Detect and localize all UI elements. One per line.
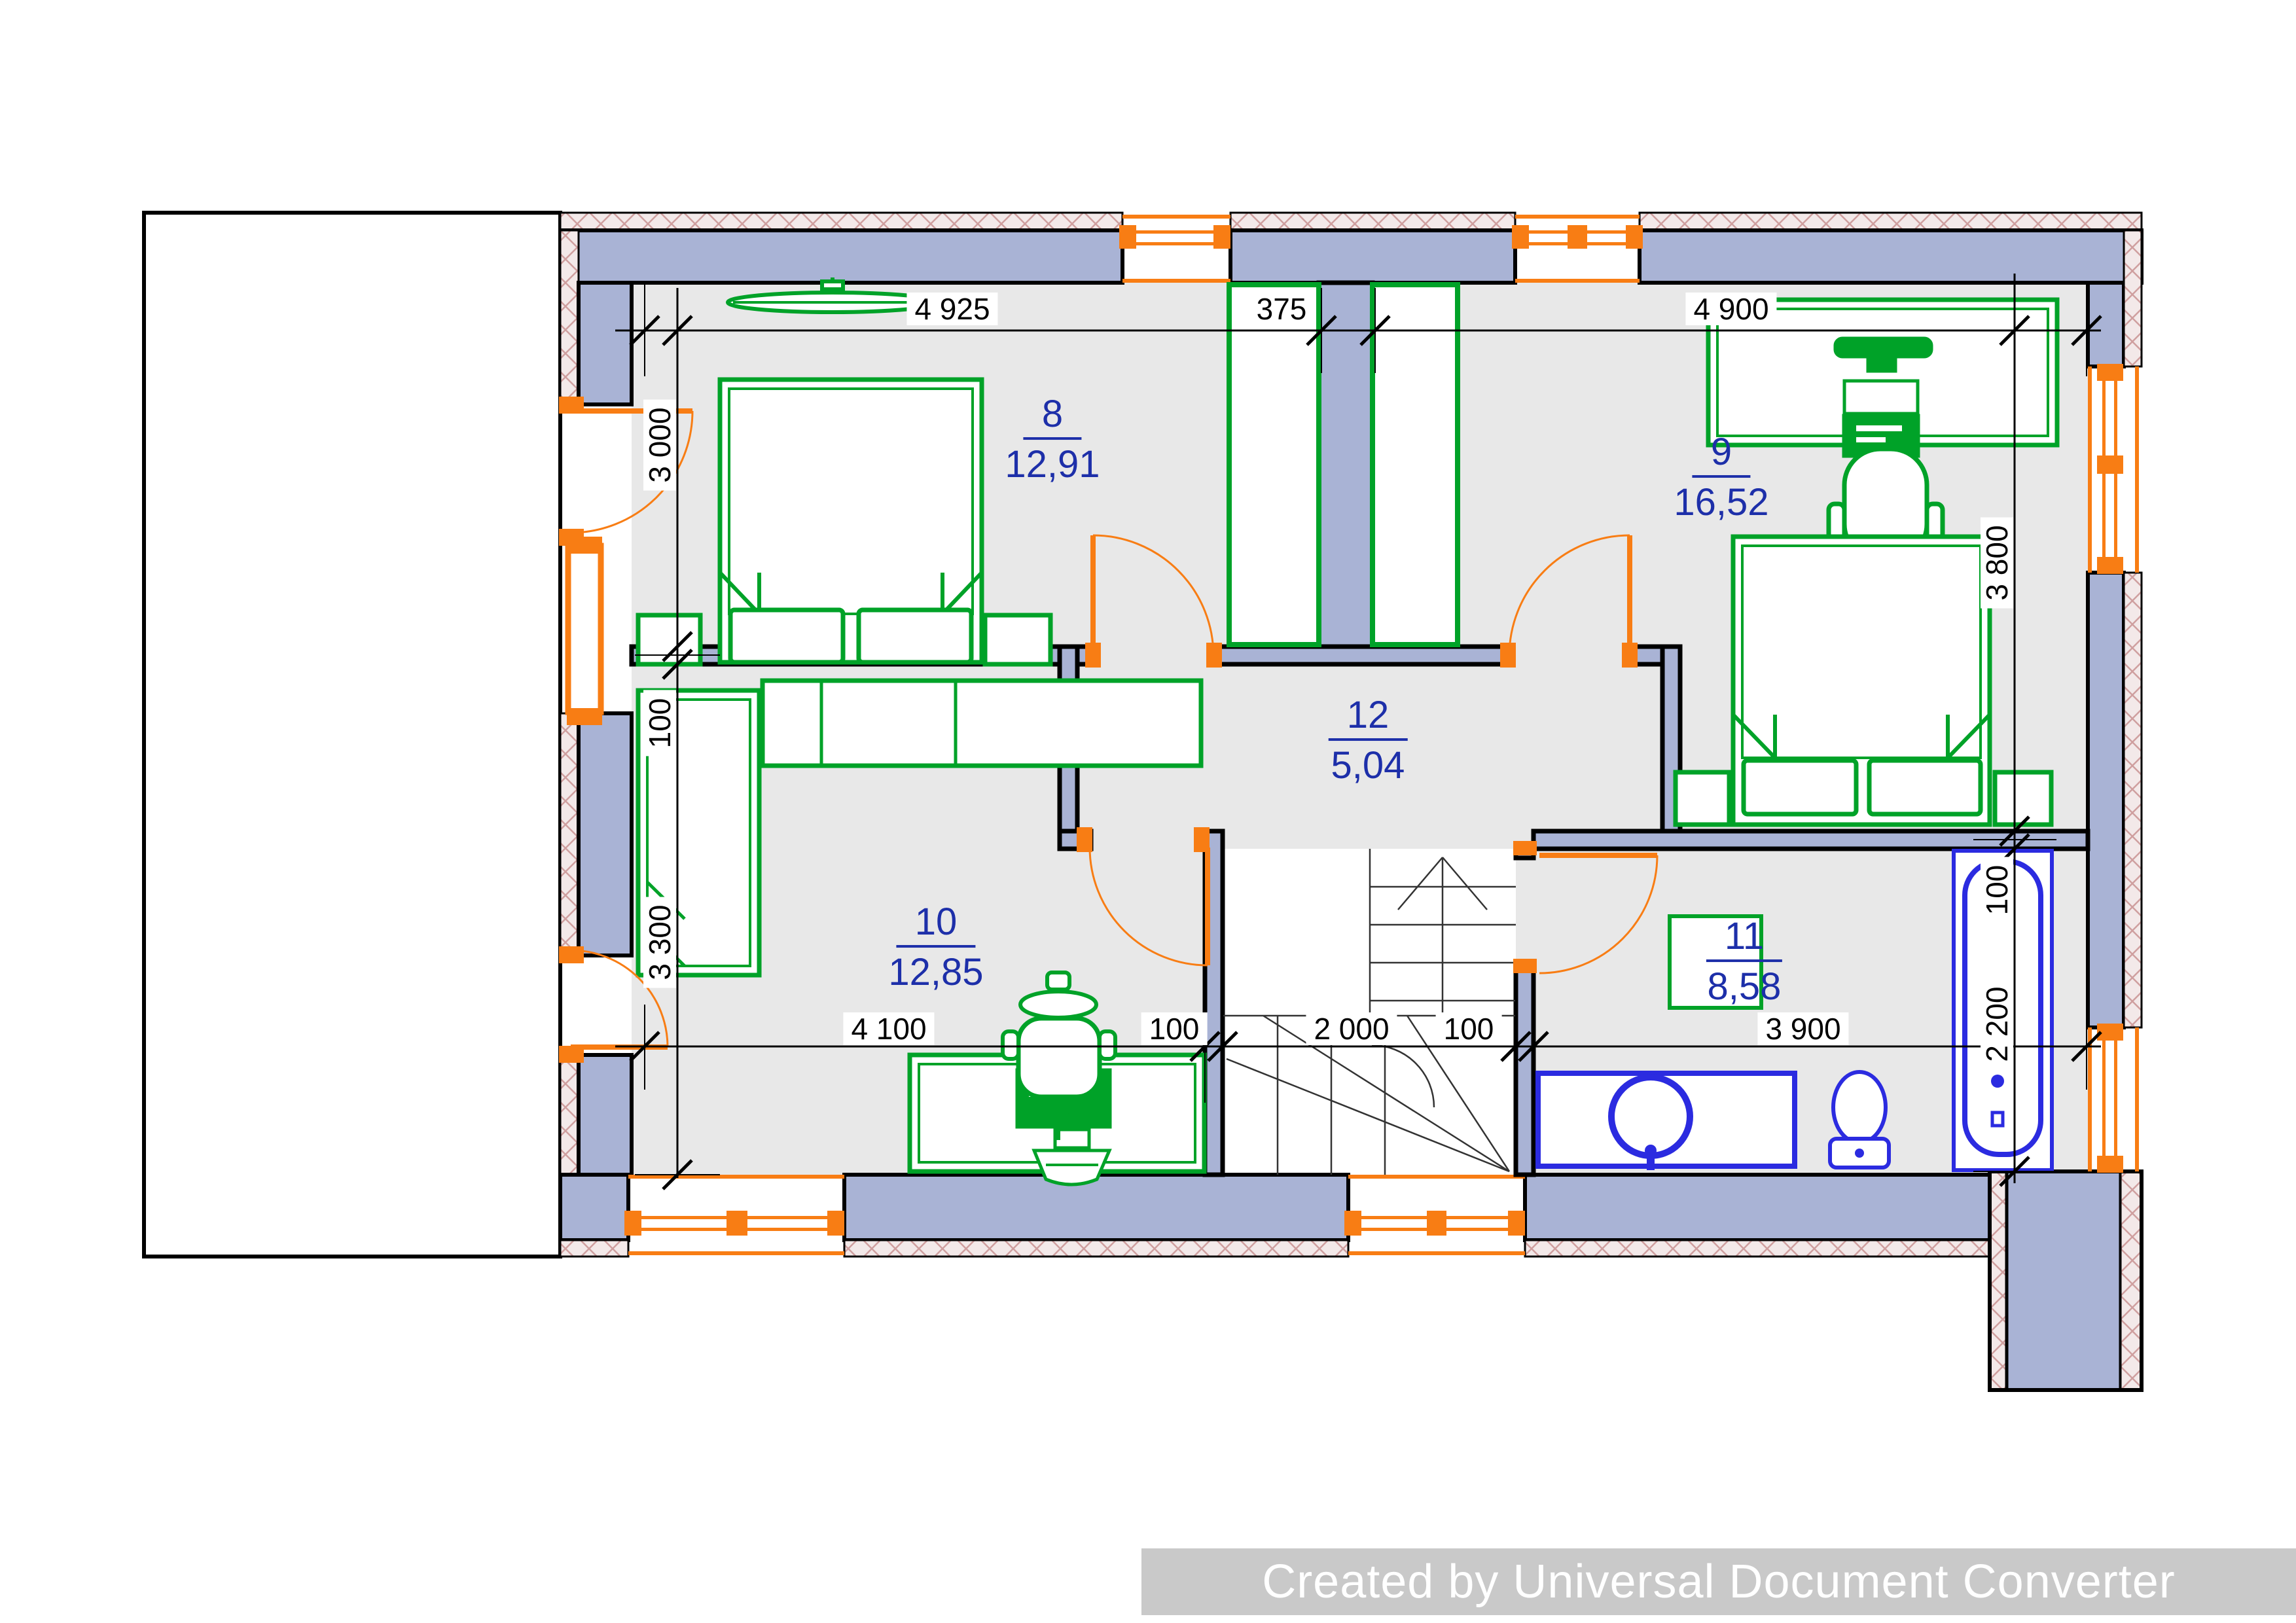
room-12-area: 5,04 [1329,741,1408,787]
floorplan-sheet: 4 925 375 4 900 4 100 100 2 000 100 3 90… [0,0,2296,1623]
room-label-9: 9 16,52 [1674,431,1768,524]
dim-bottom-1: 4 100 [843,1012,934,1045]
window-bottom-1-icon [624,1175,844,1255]
dresser-room10-icon [762,681,1201,766]
nightstand-room9-right [1995,772,2051,825]
double-bed-room9-icon [1733,537,1990,825]
dim-top-1: 4 925 [906,293,997,325]
dim-left-1: 3 000 [643,399,676,490]
dim-bottom-2: 100 [1141,1012,1208,1045]
double-bed-room8-icon [720,380,982,662]
toilet-icon [1830,1072,1889,1168]
dim-bottom-5: 3 900 [1757,1012,1848,1045]
room-10-number: 10 [897,901,976,948]
room-11-number: 11 [1706,916,1782,962]
annex-roof-outline [144,213,560,1257]
dim-right-2: 100 [1981,857,2013,923]
dim-top-3: 4 900 [1685,293,1776,325]
window-left-icon [567,537,602,725]
room-8-area: 12,91 [1005,440,1100,486]
room-label-8: 8 12,91 [1005,393,1100,486]
wardrobe-hall-right [1372,285,1458,645]
room-9-number: 9 [1693,431,1750,478]
dim-left-2: 100 [643,690,676,757]
chimney-block [1990,1171,2142,1390]
room-8-number: 8 [1024,393,1081,440]
window-bottom-2-icon [1344,1175,1525,1255]
wardrobe-hall-left [1229,285,1319,645]
room-12-number: 12 [1329,694,1408,741]
dim-bottom-3: 2 000 [1306,1012,1397,1045]
room-label-10: 10 12,85 [888,901,983,994]
dim-top-2: 375 [1249,293,1315,325]
dim-right-1: 3 800 [1981,517,2013,608]
window-top-1-icon [1119,215,1230,283]
watermark-banner: Created by Universal Document Converter [1141,1548,2296,1615]
room-10-area: 12,85 [888,948,983,994]
room-label-11: 11 8,58 [1706,916,1782,1008]
dim-right-3: 2 200 [1981,978,2013,1069]
dim-bottom-4: 100 [1436,1012,1502,1045]
room-label-12: 12 5,04 [1329,694,1408,787]
dim-left-3: 3 300 [643,897,676,988]
window-right-1-icon [2088,364,2139,574]
nightstand-room9-left [1676,772,1729,825]
floorplan-drawing [0,0,2296,1623]
nightstand-room8-right [985,615,1050,664]
room-11-area: 8,58 [1706,962,1782,1008]
room-9-area: 16,52 [1674,478,1768,524]
window-top-2-icon [1512,215,1643,283]
vanity-sink-icon [1538,1073,1795,1170]
